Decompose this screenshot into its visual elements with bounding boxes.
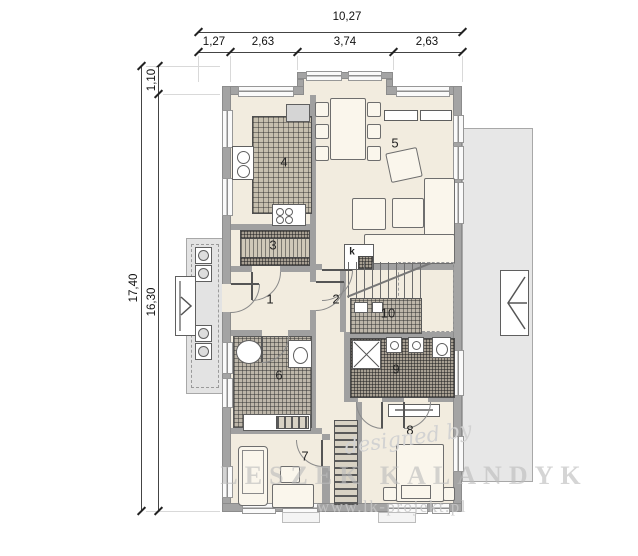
sofa-section [364,234,455,264]
coffee-table [392,198,424,228]
burner-icon [276,208,284,216]
dim-top-seg-1: 1,27 [201,36,227,48]
ext-line [393,56,394,70]
partition-wall [322,434,330,440]
floor-plan: 10,27 1,27 2,63 3,74 2,63 17,40 1,10 16,… [0,0,638,556]
toilet-bowl-icon [293,347,308,364]
window [453,115,464,143]
dim-line-left-inner [158,66,159,511]
door-leaf [251,272,253,300]
window [222,342,233,374]
ext-line [198,56,199,82]
watermark-website: www.lk-projekt.pl [317,497,467,517]
dim-top-total: 10,27 [331,11,364,23]
dining-chair [367,102,381,117]
column-icon [198,268,209,279]
room-label-6: 6 [275,368,282,383]
ext-line [462,56,463,82]
toilet-bowl-icon [436,343,448,356]
bathroom9-sink [386,337,402,353]
terrace-arrow-icon [501,271,528,335]
bathroom9-sink [408,337,424,353]
dim-top-seg-4: 2,63 [414,36,440,48]
dining-chair [315,146,329,161]
window [222,110,233,148]
door-leaf [381,402,383,428]
dim-top-seg-2: 2,63 [250,36,276,48]
entrance-door-gap [222,284,231,312]
window [396,86,450,97]
room-label-10: 10 [381,306,395,321]
sink-bowl-icon [390,341,399,350]
entrance-arrow-icon [176,277,195,335]
pantry-shelves [240,257,310,266]
room-label-4: 4 [280,155,287,170]
window [222,178,233,216]
column-icon [198,250,209,261]
fireplace-label: k [349,247,355,258]
ext-line [163,94,220,95]
room-label-2: 2 [332,292,339,307]
ext-line [297,56,298,70]
dim-line-left-total [141,66,142,511]
window [306,71,342,81]
porch-column [195,325,212,342]
kitchen-sink [232,146,254,180]
room-label-5: 5 [391,136,398,151]
column-icon [198,328,209,339]
radiator [384,110,418,121]
porch-column [195,247,212,264]
dim-line-top-segments [198,52,462,53]
dining-chair [315,124,329,139]
dim-left-inner: 16,30 [146,286,158,319]
bathroom9-toilet [432,337,451,358]
shower [352,340,381,369]
sink-bowl-icon [412,341,421,350]
dining-chair [367,124,381,139]
sink-bowl-icon [237,151,250,164]
dining-chair [315,102,329,117]
porch-column [195,265,212,282]
burner-icon [285,208,293,216]
window [222,378,233,408]
burner-icon [276,216,284,224]
dining-chair [367,146,381,161]
exterior-step [282,512,320,523]
burner-icon [285,216,293,224]
window [238,86,294,97]
entrance-arrow-box [175,276,196,336]
terrace-arrow-box [500,270,529,336]
dim-left-offset: 1,10 [146,67,158,93]
dim-tick [137,506,146,515]
sink-bowl-icon [237,165,250,178]
room-label-9: 9 [392,362,399,377]
room-label-3: 3 [269,238,276,253]
stove [272,204,306,226]
bathroom6-toilet [288,340,312,368]
understair-sink [354,302,368,313]
fridge [286,104,310,122]
bathroom6-sink [236,340,262,364]
window [348,71,382,81]
bay-floor [304,79,386,97]
dining-table [330,98,366,160]
dim-tick [458,27,467,36]
door-leaf [261,336,263,362]
ext-line [230,56,231,82]
door-leaf [403,402,405,428]
partition-wall [231,266,252,272]
window [453,146,464,180]
dim-left-total: 17,40 [128,272,140,305]
column-icon [198,346,209,357]
door-leaf [322,269,352,271]
radiator [420,110,452,121]
armchair [352,198,386,230]
room-label-1: 1 [266,292,273,307]
dim-top-seg-3: 3,74 [332,36,358,48]
partition-wall [280,266,316,272]
watermark-author: LESZEK KALANDYK [220,461,587,491]
shower-cross-icon [353,341,380,368]
dim-line-top-total [198,32,462,33]
hall-shelf-hatch [276,416,309,429]
porch-column [195,343,212,360]
